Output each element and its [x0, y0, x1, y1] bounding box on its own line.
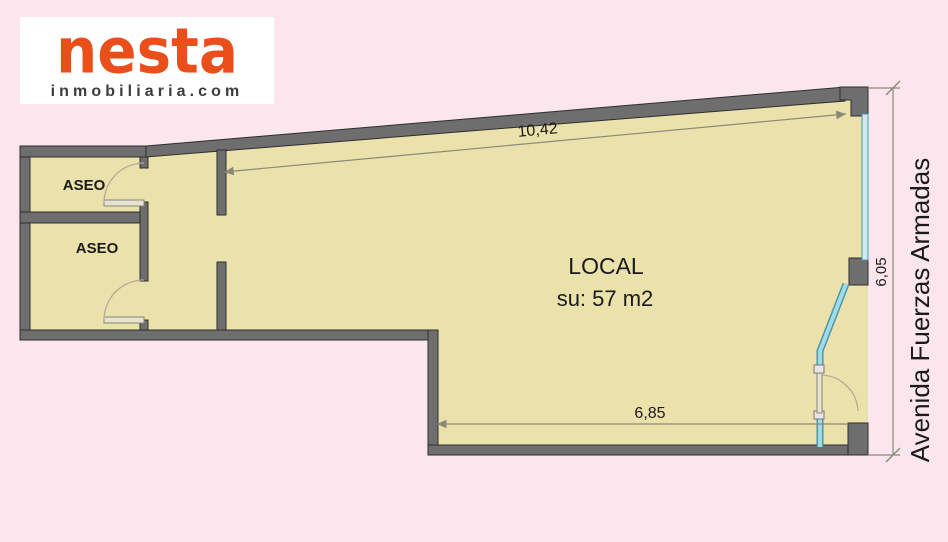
room-label-aseo-lower: ASEO: [76, 240, 119, 257]
dimension-label-right: 6,05: [873, 257, 890, 286]
room-label-aseo-upper: ASEO: [63, 177, 106, 194]
wall-left: [20, 146, 30, 340]
floor-plan-image: nesta inmobiliaria.com: [0, 0, 948, 542]
wall-pillar-right: [849, 258, 868, 285]
wall-bottom: [428, 445, 868, 455]
room-label-local: LOCAL: [568, 253, 644, 279]
street-name-label: Avenida Fuerzas Armadas: [905, 158, 935, 462]
aseo-lower-door-leaf: [104, 317, 144, 323]
wall-vestibule-right-top: [217, 150, 226, 215]
wall-step: [428, 330, 438, 455]
storefront-glass-upper: [862, 114, 868, 260]
wall-vestibule-right-bottom: [217, 262, 226, 340]
aseo-upper-door-leaf: [104, 200, 144, 206]
entrance-door-leaf: [817, 373, 822, 413]
entrance-door-jamb-top: [814, 365, 824, 373]
room-label-local-area: su: 57 m2: [557, 286, 654, 311]
wall-vestibule-left: [140, 202, 148, 281]
wall-bottom-left: [20, 330, 438, 340]
dimension-label-bottom: 6,85: [634, 405, 665, 422]
floor-plan-drawing: ASEO ASEO LOCAL su: 57 m2 10,42 6,85 6,0…: [0, 0, 948, 542]
wall-top-left: [20, 146, 148, 157]
wall-corner-bottom-right: [848, 423, 868, 455]
wall-between-aseos: [20, 212, 148, 223]
